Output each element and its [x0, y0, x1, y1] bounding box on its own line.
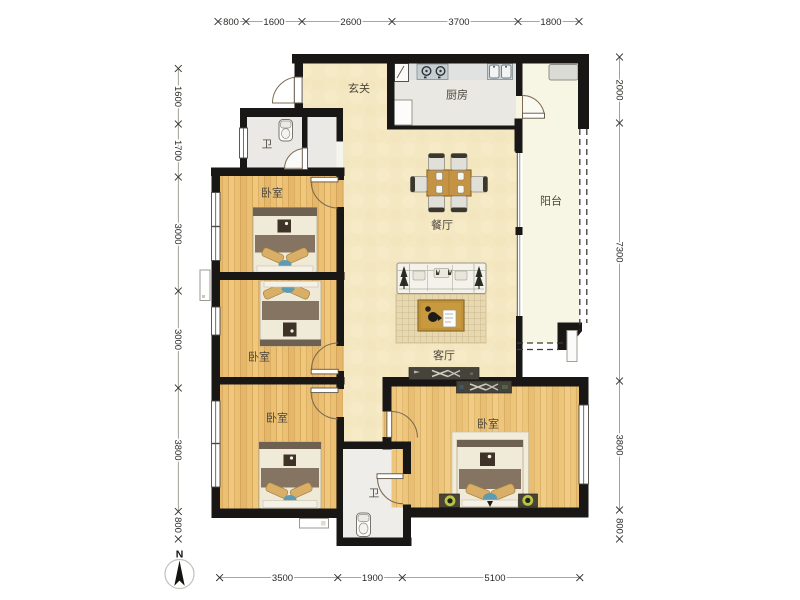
svg-text:1600: 1600 — [263, 17, 284, 28]
svg-text:2000: 2000 — [613, 79, 624, 100]
svg-text:卧室: 卧室 — [266, 411, 288, 425]
svg-text:3000: 3000 — [172, 329, 183, 350]
svg-text:3500: 3500 — [272, 573, 293, 584]
svg-text:3700: 3700 — [448, 17, 469, 28]
svg-text:1800: 1800 — [540, 17, 561, 28]
svg-text:800: 800 — [613, 518, 624, 534]
svg-text:卧室: 卧室 — [248, 350, 270, 364]
svg-text:N: N — [176, 549, 184, 561]
svg-text:3800: 3800 — [172, 439, 183, 460]
svg-text:玄关: 玄关 — [348, 81, 370, 95]
svg-text:1600: 1600 — [172, 86, 183, 107]
svg-text:3000: 3000 — [172, 223, 183, 244]
svg-text:1700: 1700 — [172, 140, 183, 161]
svg-text:餐厅: 餐厅 — [431, 218, 453, 232]
svg-text:800: 800 — [223, 17, 239, 28]
svg-text:卧室: 卧室 — [261, 186, 283, 200]
svg-text:5100: 5100 — [484, 573, 505, 584]
svg-text:3800: 3800 — [613, 434, 624, 455]
svg-text:客厅: 客厅 — [433, 348, 455, 362]
svg-text:7300: 7300 — [613, 241, 624, 262]
svg-text:800: 800 — [172, 517, 183, 533]
svg-text:厨房: 厨房 — [446, 89, 468, 102]
svg-text:卧室: 卧室 — [477, 417, 499, 431]
svg-text:阳台: 阳台 — [540, 194, 562, 208]
svg-text:卫: 卫 — [262, 139, 273, 151]
svg-text:2600: 2600 — [340, 17, 361, 28]
svg-text:卫: 卫 — [369, 488, 380, 500]
svg-text:1900: 1900 — [362, 573, 383, 584]
